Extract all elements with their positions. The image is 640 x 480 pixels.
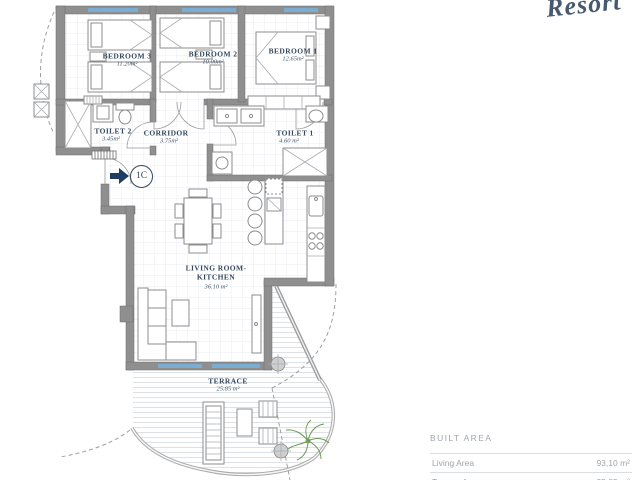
room-area-terrace: 25.85 m² [217,386,240,393]
built-area-header: BUILT AREA [430,433,632,443]
room-label-terrace: TERRACE [208,377,247,386]
room-label-living-line1: LIVING ROOM- [186,264,247,273]
room-label-bedroom-1: BEDROOM 1 [269,47,318,56]
room-area-toilet-2: 3.45m² [102,136,120,143]
area-row-label: Living Area [432,458,474,468]
unit-label: 1C [130,165,153,188]
room-area-bedroom-1: 12.65m² [282,56,303,63]
room-area-corridor: 3.75m² [160,138,178,145]
area-row-terrace: Terrace Area 25,85 m² [430,472,632,480]
room-label-bedroom-3: BEDROOM 3 [103,52,152,61]
room-label-living-line2: KITCHEN [197,273,235,282]
area-row-living: Living Area 93,10 m² [430,453,632,472]
built-area-table: BUILT AREA Living Area 93,10 m² Terrace … [430,433,632,480]
room-label-toilet-2: TOILET 2 [94,127,131,136]
area-row-value: 93,10 m² [596,458,630,468]
room-area-bedroom-2: 10.00m² [202,59,223,66]
room-label-bedroom-2: BEDROOM 2 [189,50,238,59]
floorplan-drawing [0,0,640,480]
room-area-living: 36.10 m² [205,284,228,291]
room-label-toilet-1: TOILET 1 [276,129,313,138]
room-area-toilet-1: 4.60 m² [279,138,299,145]
floorplan-page: BEDROOM 3 11.20m² BEDROOM 2 10.00m² BEDR… [0,0,640,480]
room-area-bedroom-3: 11.20m² [117,61,138,68]
room-label-corridor: CORRIDOR [144,129,189,138]
